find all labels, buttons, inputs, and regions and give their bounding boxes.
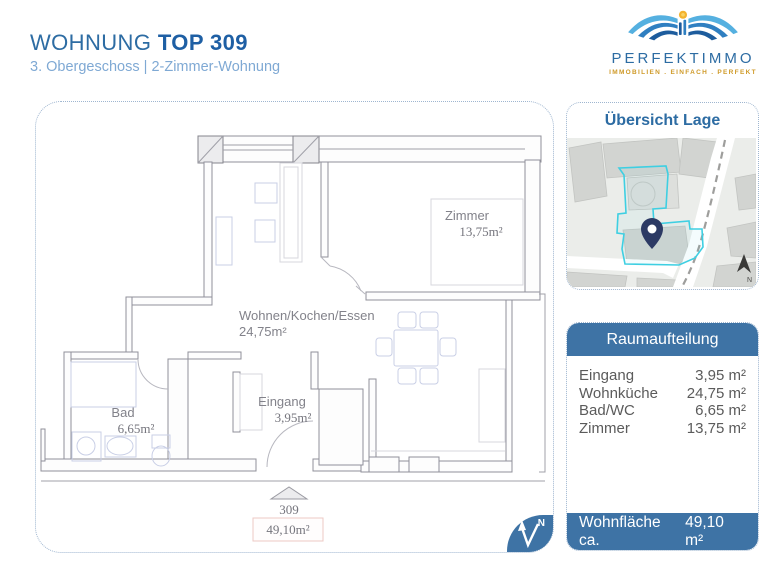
title-unit: TOP 309 [158,30,248,55]
map-north-label: N [747,277,752,284]
row-label: Zimmer [579,420,630,438]
total-area-bar: Wohnfläche ca. 49,10 m² [567,513,758,550]
north-label: N [538,518,545,529]
entrance-marker: 309 49,10m² [253,487,323,541]
logo-tagline: IMMOBILIEN . EINFACH . PERFEKT [607,69,759,76]
total-area-label: Wohnfläche ca. [579,514,685,550]
total-area-value: 49,10 m² [685,514,746,550]
zimmer-area: 13,75m² [459,224,502,239]
row-value: 24,75 m² [687,385,746,403]
zimmer-label: Zimmer [445,208,490,223]
table-row: Eingang 3,95 m² [579,367,746,385]
wohnen-area: 24,75m² [239,324,287,339]
total-area: 49,10m² [266,522,309,537]
page-subtitle: 3. Obergeschoss | 2-Zimmer-Wohnung [30,59,280,75]
bad-label: Bad [111,405,134,420]
exposee-page: WOHNUNG TOP 309 3. Obergeschoss | 2-Zimm… [0,0,767,576]
north-compass-badge: N [507,515,553,552]
title-prefix: WOHNUNG [30,30,151,55]
wohnen-label: Wohnen/Kochen/Essen [239,308,375,323]
location-map: N [567,138,756,287]
row-value: 6,65 m² [695,402,746,420]
floorplan-panel: Zimmer 13,75m² Wohnen/Kochen/Essen 24,75… [35,101,554,553]
location-map-panel: Übersicht Lage [566,102,759,290]
page-title: WOHNUNG TOP 309 [30,30,280,56]
map-panel-title: Übersicht Lage [567,103,758,138]
eingang-label: Eingang [258,394,306,409]
eagle-wings-icon [618,8,748,44]
row-value: 3,95 m² [695,367,746,385]
table-row: Bad/WC 6,65 m² [579,402,746,420]
compass-needle-icon [507,515,553,552]
unit-number: 309 [279,502,299,517]
company-logo: PERFEKTIMMO IMMOBILIEN . EINFACH . PERFE… [607,8,759,76]
row-label: Wohnküche [579,385,658,403]
room-table-body: Eingang 3,95 m² Wohnküche 24,75 m² Bad/W… [567,356,758,513]
row-label: Bad/WC [579,402,635,420]
room-table-panel: Raumaufteilung Eingang 3,95 m² Wohnküche… [566,322,759,551]
logo-wordmark: PERFEKTIMMO [607,50,759,67]
row-value: 13,75 m² [687,420,746,438]
table-row: Zimmer 13,75 m² [579,420,746,438]
bad-area: 6,65m² [118,421,155,436]
room-table-title: Raumaufteilung [567,323,758,356]
page-title-block: WOHNUNG TOP 309 3. Obergeschoss | 2-Zimm… [30,30,280,75]
eingang-area: 3,95m² [275,410,312,425]
row-label: Eingang [579,367,634,385]
table-row: Wohnküche 24,75 m² [579,385,746,403]
floorplan-drawing: Zimmer 13,75m² Wohnen/Kochen/Essen 24,75… [36,102,551,550]
